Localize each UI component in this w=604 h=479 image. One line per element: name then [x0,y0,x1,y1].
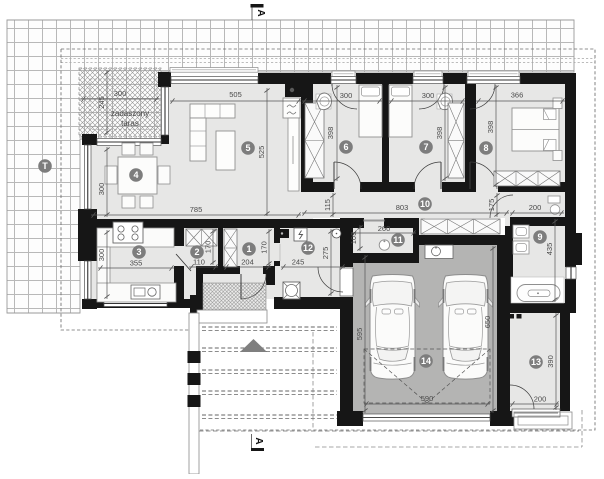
svg-text:6: 6 [343,142,348,152]
svg-text:260: 260 [378,224,391,233]
svg-text:300: 300 [340,91,353,100]
svg-text:5: 5 [245,143,250,153]
svg-text:1: 1 [246,244,251,254]
svg-text:14: 14 [421,356,431,366]
svg-text:8: 8 [483,143,488,153]
svg-text:803: 803 [396,203,409,212]
svg-text:taras: taras [121,119,139,128]
svg-text:785: 785 [190,205,203,214]
svg-text:200: 200 [529,203,542,212]
svg-text:4: 4 [133,170,138,180]
svg-text:300: 300 [97,249,106,262]
svg-text:A: A [255,9,266,16]
svg-text:275: 275 [321,247,330,260]
svg-text:398: 398 [486,121,495,134]
svg-text:300: 300 [114,89,127,98]
svg-text:204: 204 [241,258,254,267]
svg-text:12: 12 [303,243,313,253]
svg-text:T: T [42,161,48,171]
svg-text:390: 390 [546,355,555,368]
svg-text:435: 435 [545,243,554,256]
svg-text:355: 355 [130,259,143,268]
svg-text:10: 10 [420,199,430,209]
svg-text:2: 2 [194,247,199,257]
svg-text:525: 525 [257,146,266,159]
svg-text:505: 505 [229,90,242,99]
svg-text:300: 300 [422,91,435,100]
svg-text:366: 366 [511,91,524,100]
svg-text:103: 103 [349,232,358,245]
svg-text:11: 11 [393,235,403,245]
svg-text:A: A [253,437,264,444]
svg-text:115: 115 [323,199,332,211]
svg-text:170: 170 [260,241,269,254]
svg-text:110: 110 [193,258,205,267]
svg-text:245: 245 [97,96,106,109]
svg-text:170: 170 [204,241,213,254]
svg-text:7: 7 [423,142,428,152]
svg-text:398: 398 [326,127,335,140]
svg-text:398: 398 [435,127,444,140]
svg-text:650: 650 [483,316,492,329]
svg-text:590: 590 [421,394,434,403]
svg-text:175: 175 [487,199,496,212]
svg-text:300: 300 [97,183,106,196]
svg-text:200: 200 [534,395,547,404]
svg-text:13: 13 [531,357,541,367]
svg-text:zadaszony: zadaszony [111,109,149,118]
svg-text:3: 3 [136,247,141,257]
svg-text:595: 595 [355,328,364,341]
svg-text:245: 245 [292,258,305,267]
svg-text:9: 9 [537,232,542,242]
